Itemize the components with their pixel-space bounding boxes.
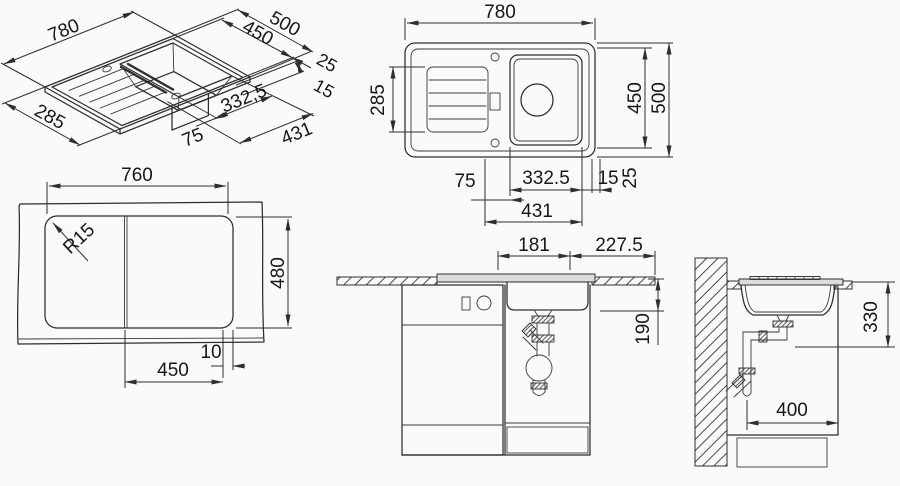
side-dim-clearance: 400 (776, 400, 808, 421)
sink-flange-front (437, 274, 595, 282)
tap-hole-bottom (491, 139, 499, 147)
front-dim-cutout-depth: 480 (268, 257, 289, 289)
plan-dim-edge: 25 (620, 167, 641, 188)
plan-dim-rim: 15 (597, 168, 618, 189)
iso-dim-edge: 25 (313, 49, 340, 76)
plan-dim-cutout-width: 431 (521, 201, 553, 222)
overflow-plan (490, 93, 500, 110)
side-dim-install-depth: 330 (861, 301, 882, 333)
plinth-side (737, 438, 827, 467)
plan-dim-inner-depth: 450 (625, 82, 646, 114)
wall-section-view: 330 400 (695, 258, 895, 467)
drainboard-ridges-plan (429, 80, 486, 119)
drawing-canvas: 780 500 450 25 15 285 332,5 75 431 (0, 0, 900, 486)
bowl-section-side (741, 285, 835, 315)
front-dim-divider-offset: 450 (157, 360, 189, 381)
cutout-dimensions (47, 182, 292, 388)
plan-dim-width: 780 (484, 2, 516, 23)
cutout-divider (125, 217, 128, 328)
worktop-left (337, 277, 437, 285)
bowl-section-front (507, 282, 588, 310)
plinth-drawer (507, 427, 588, 453)
technical-drawing: 780 500 450 25 15 285 332,5 75 431 (0, 0, 900, 486)
cutout-view: 760 R15 480 10 450 (18, 165, 292, 388)
plan-view: 780 285 450 500 75 332.5 15 25 431 (368, 2, 673, 226)
plan-dim-drainer-depth: 285 (368, 84, 389, 116)
cabinet-side (727, 287, 838, 467)
iso-dim-bowl-width: 332,5 (218, 80, 270, 117)
plan-dim-depth: 500 (649, 82, 670, 114)
left-cabinet (402, 285, 503, 455)
iso-dim-cutout-width: 431 (278, 118, 315, 149)
sink-outline-plan (405, 43, 595, 157)
cab-dim-drain-depth: 190 (633, 313, 654, 345)
iso-dim-rim: 15 (310, 75, 337, 102)
isometric-view: 780 500 450 25 15 285 332,5 75 431 (1, 7, 341, 151)
appliance-switch (462, 297, 470, 310)
tap-hole-top (491, 53, 499, 61)
wall (695, 258, 727, 466)
iso-dim-drainer-depth: 285 (31, 100, 69, 134)
cab-dim-left: 181 (518, 235, 550, 256)
iso-dim-width: 780 (45, 15, 82, 46)
worktop-right (592, 277, 655, 285)
plan-dim-offset: 75 (454, 171, 475, 192)
front-dim-corner-radius: R15 (59, 219, 99, 258)
front-dim-edge-gap: 10 (200, 342, 221, 363)
appliance-knob (477, 296, 491, 310)
worktop-outline (18, 202, 264, 344)
drain-hole-plan (521, 84, 553, 116)
siphon-trap-side (726, 315, 793, 397)
plan-dim-bowl-width: 332.5 (522, 168, 570, 189)
siphon-trap-front (522, 310, 554, 396)
iso-dim-offset: 75 (179, 124, 206, 151)
sink-body-isometric (45, 35, 250, 134)
cab-dim-right: 227.5 (595, 235, 643, 256)
cabinet-section-view: 181 227.5 190 (337, 235, 664, 455)
front-dim-cutout-width: 760 (121, 165, 153, 186)
drainboard-plan (427, 67, 488, 132)
